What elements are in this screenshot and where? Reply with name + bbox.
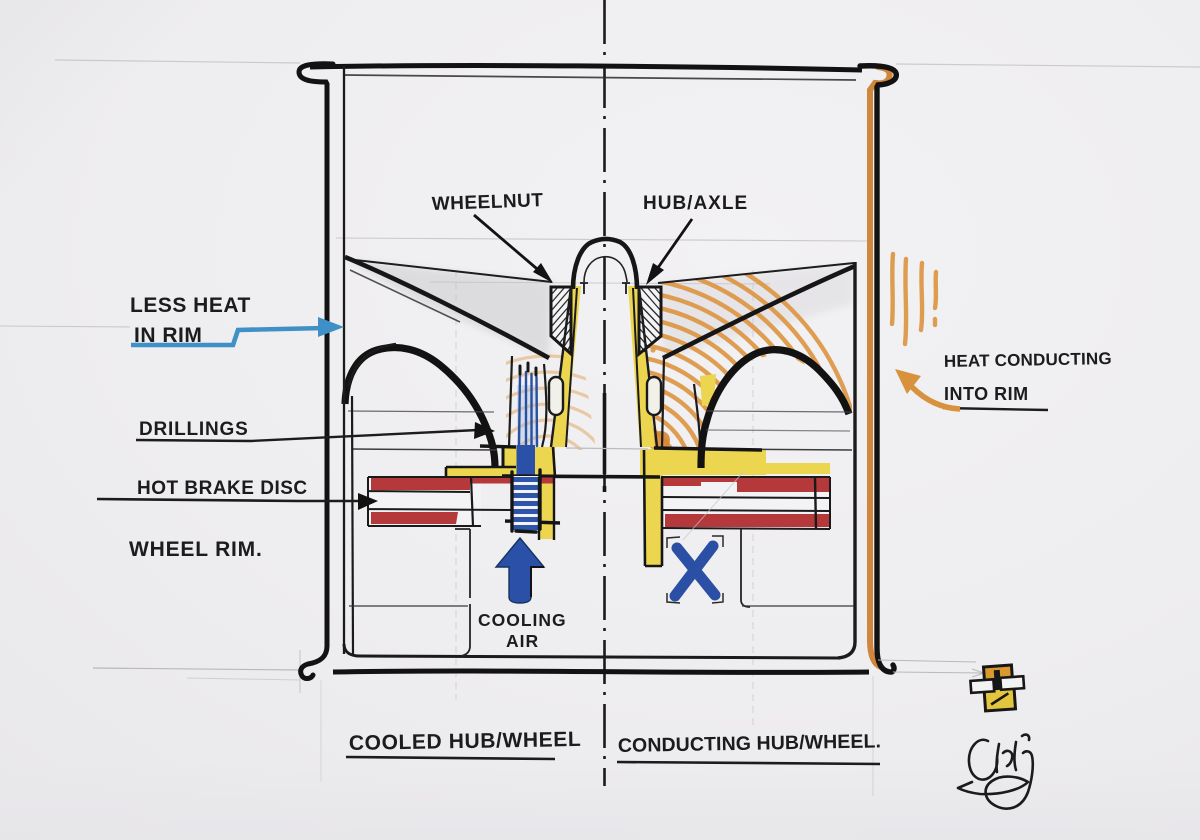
svg-text:COOLING: COOLING: [478, 610, 567, 630]
svg-text:LESS HEAT: LESS HEAT: [130, 294, 251, 317]
svg-text:INTO RIM: INTO RIM: [944, 384, 1029, 404]
svg-text:AIR: AIR: [506, 631, 539, 651]
svg-text:HEAT CONDUCTING: HEAT CONDUCTING: [944, 349, 1112, 371]
svg-text:WHEELNUT: WHEELNUT: [431, 190, 543, 215]
svg-text:WHEEL RIM.: WHEEL RIM.: [129, 538, 263, 561]
svg-text:HOT BRAKE DISC: HOT BRAKE DISC: [137, 478, 308, 499]
svg-text:HUB/AXLE: HUB/AXLE: [643, 193, 748, 214]
svg-text:DRILLINGS: DRILLINGS: [139, 419, 249, 440]
svg-text:COOLED HUB/WHEEL: COOLED HUB/WHEEL: [349, 728, 582, 755]
svg-text:CONDUCTING HUB/WHEEL.: CONDUCTING HUB/WHEEL.: [618, 730, 882, 757]
